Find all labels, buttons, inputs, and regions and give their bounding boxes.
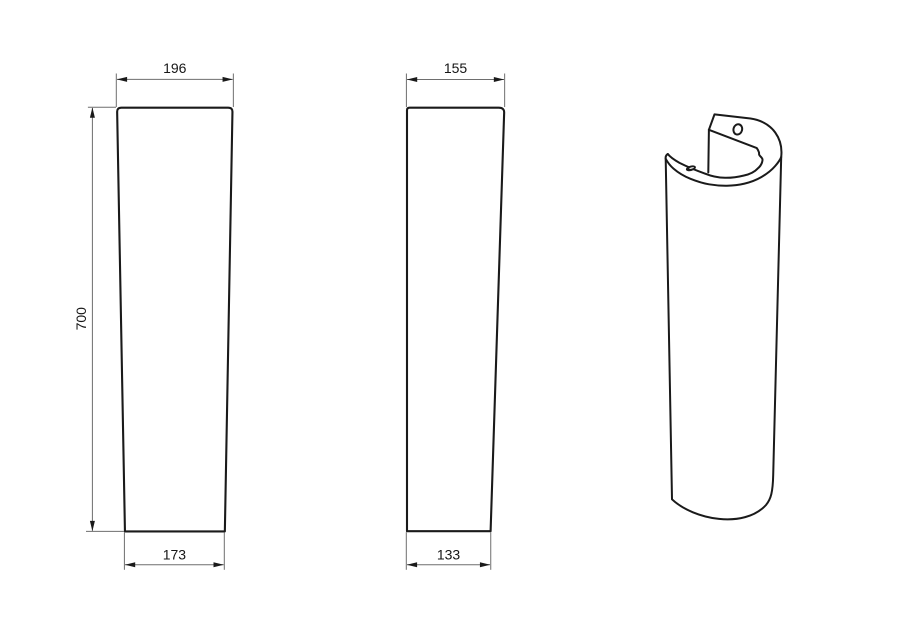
svg-text:133: 133 [437,546,461,562]
svg-text:196: 196 [163,60,187,76]
svg-text:155: 155 [444,60,468,76]
svg-text:700: 700 [73,307,89,331]
svg-text:173: 173 [163,546,187,562]
